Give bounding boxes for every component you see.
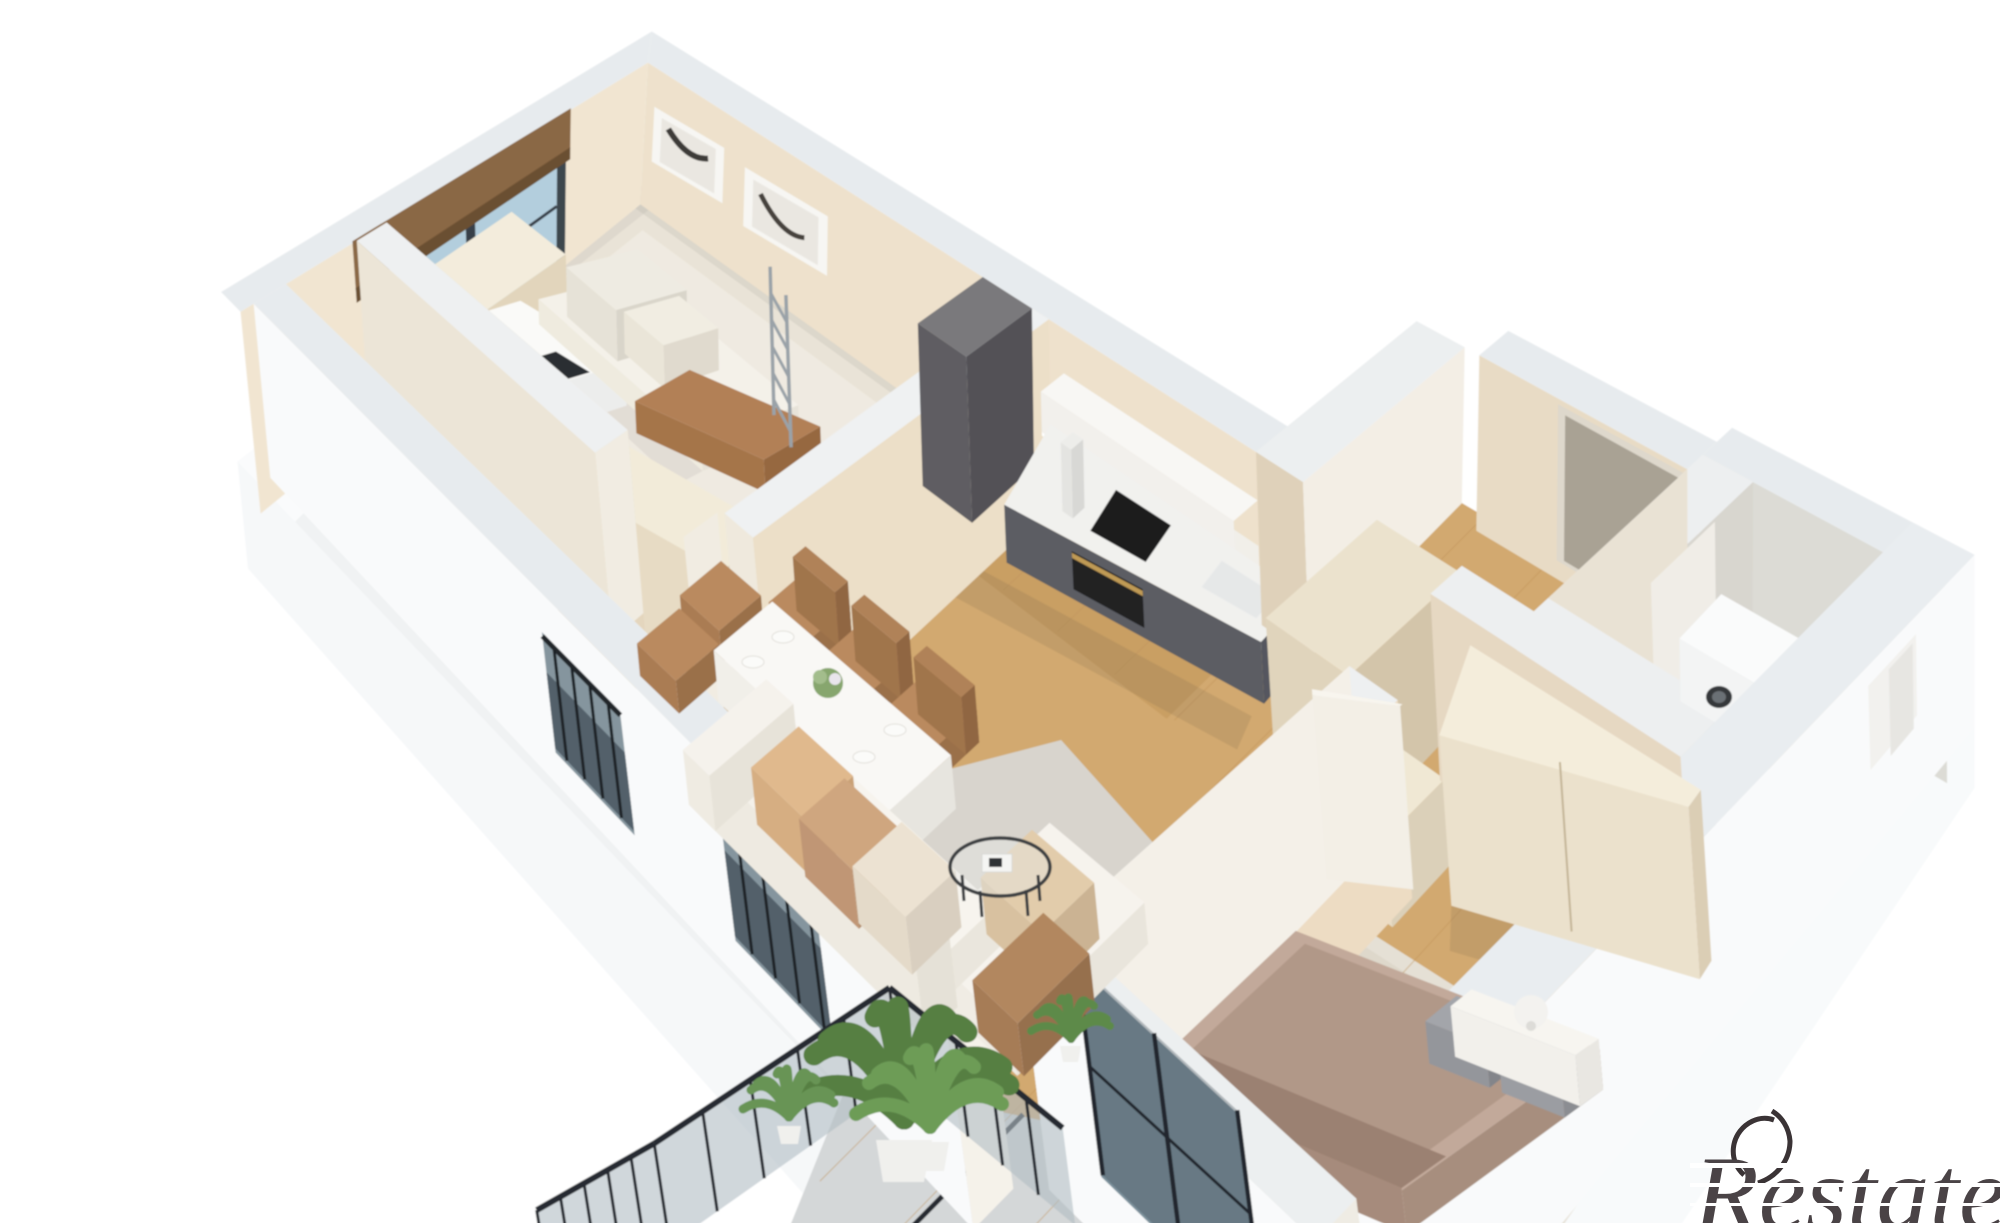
- svg-text:Restate: Restate: [1693, 1135, 2000, 1223]
